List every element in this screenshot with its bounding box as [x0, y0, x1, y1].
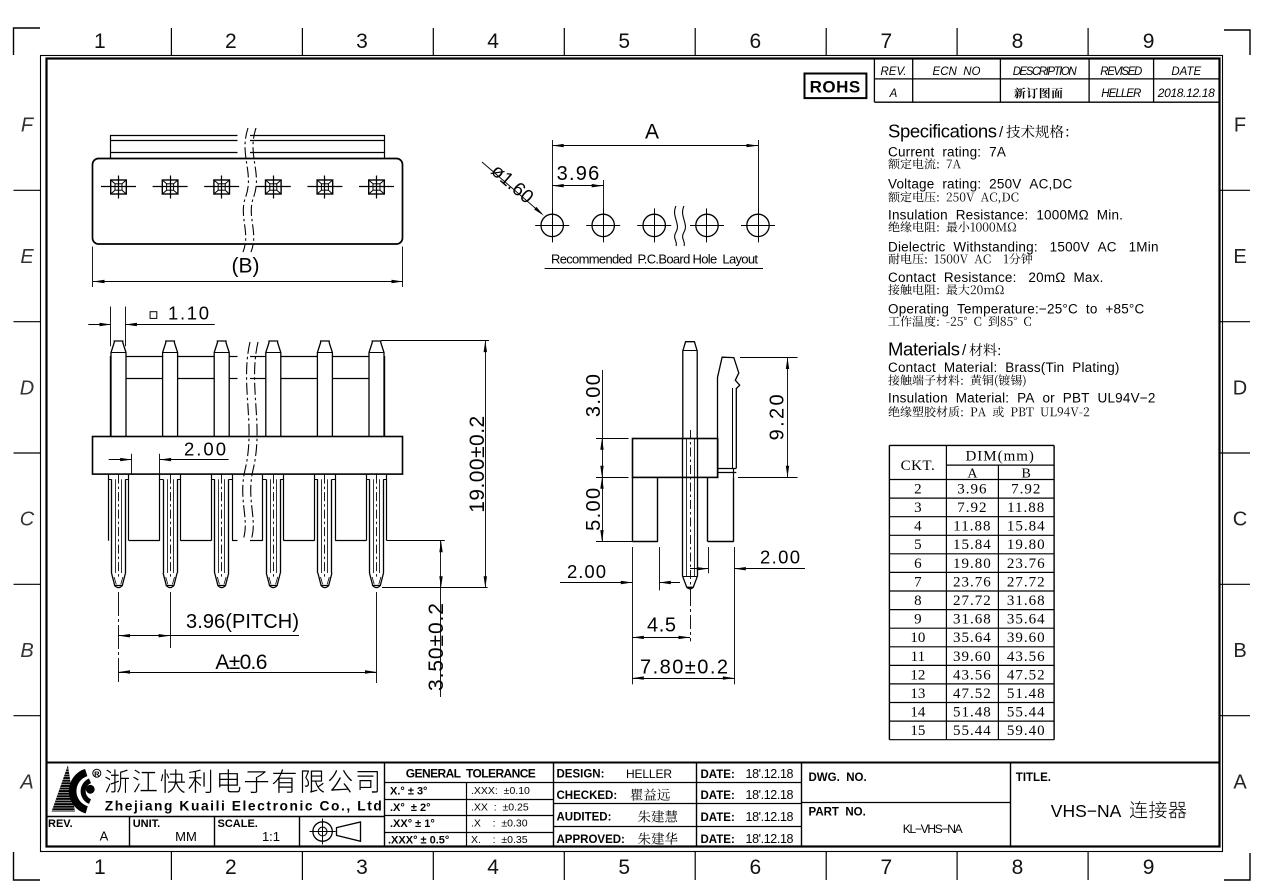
svg-text:CKT.: CKT.: [901, 458, 936, 474]
svg-text:HELLER: HELLER: [626, 767, 672, 781]
svg-text:Zhejiang Kuaili Electronic Co.: Zhejiang Kuaili Electronic Co., Ltd: [105, 799, 382, 814]
svg-text:8: 8: [914, 593, 922, 609]
svg-text:35.64: 35.64: [953, 630, 992, 646]
svg-text:7: 7: [881, 856, 893, 879]
svg-text:8: 8: [1012, 30, 1024, 53]
svg-text:REV.: REV.: [48, 818, 73, 830]
svg-text:E: E: [20, 246, 34, 268]
svg-text:39.60: 39.60: [953, 649, 992, 665]
svg-text:5: 5: [914, 537, 922, 553]
svg-text:14: 14: [910, 705, 926, 721]
svg-text:UNIT.: UNIT.: [133, 818, 161, 830]
svg-text:MM: MM: [175, 829, 197, 844]
svg-text:1: 1: [94, 856, 106, 879]
svg-text:B: B: [20, 640, 33, 662]
svg-text:A: A: [967, 466, 978, 481]
svg-text:5: 5: [618, 30, 630, 53]
svg-text:.XX° ± 1°: .XX° ± 1°: [390, 818, 435, 830]
svg-text:DESIGN:: DESIGN:: [557, 769, 605, 781]
svg-text:DESCRIPTION: DESCRIPTION: [1013, 66, 1078, 78]
svg-text:19.80: 19.80: [953, 556, 992, 572]
svg-text:11: 11: [911, 649, 925, 665]
svg-text:5.00: 5.00: [583, 488, 605, 531]
svg-text:11.88: 11.88: [953, 519, 991, 535]
svg-text:GENERAL TOLERANCE: GENERAL TOLERANCE: [406, 767, 536, 781]
svg-text:47.52: 47.52: [953, 686, 992, 702]
svg-text:9.20: 9.20: [767, 394, 789, 440]
svg-text:DATE:: DATE:: [701, 769, 735, 781]
svg-text:F: F: [21, 115, 35, 137]
svg-text:.X : ±0.30: .X : ±0.30: [471, 818, 528, 830]
svg-text:A: A: [100, 829, 109, 844]
svg-text:ROHS: ROHS: [810, 78, 861, 97]
svg-text:.XXX° ± 0.5°: .XXX° ± 0.5°: [388, 835, 449, 847]
svg-text:Contact Material: Brass(Tin: Contact Material: Brass(Tin Plating): [888, 360, 1120, 375]
svg-text:51.48: 51.48: [1007, 686, 1046, 702]
svg-text:(B): (B): [232, 255, 260, 278]
svg-text:55.44: 55.44: [953, 723, 992, 739]
svg-text:Operating Temperature:−25°C: Operating Temperature:−25°C to +85°C: [888, 301, 1145, 316]
svg-text:47.52: 47.52: [1007, 667, 1046, 683]
svg-text:DWG. NO.: DWG. NO.: [809, 772, 867, 784]
svg-text:Insulation Resistance: 1000M: Insulation Resistance: 1000MΩ Min.: [888, 207, 1123, 222]
svg-text:ECN NO: ECN NO: [933, 66, 981, 78]
svg-text:DATE:: DATE:: [701, 812, 735, 824]
svg-text:1.10: 1.10: [168, 303, 209, 324]
svg-text:3.96: 3.96: [957, 481, 987, 497]
svg-text:15.84: 15.84: [1007, 519, 1046, 535]
svg-text:Dielectric Withstanding: 15: Dielectric Withstanding: 1500V AC 1Min: [888, 239, 1159, 254]
svg-text:.XXX: ±0.10: .XXX: ±0.10: [471, 785, 530, 797]
svg-text:4.5: 4.5: [647, 615, 676, 637]
svg-text:DATE:: DATE:: [701, 790, 735, 802]
svg-text:4: 4: [914, 519, 922, 535]
svg-text:E: E: [1233, 246, 1246, 268]
svg-text:39.60: 39.60: [1007, 630, 1046, 646]
svg-text:6: 6: [749, 30, 761, 53]
svg-text:3.96: 3.96: [557, 163, 600, 185]
svg-text:1: 1: [94, 30, 106, 53]
svg-text:18'.12.18: 18'.12.18: [746, 832, 794, 846]
svg-text:3: 3: [914, 500, 922, 516]
svg-text:9: 9: [914, 612, 922, 628]
svg-text:31.68: 31.68: [1007, 593, 1046, 609]
svg-text:18'.12.18: 18'.12.18: [746, 767, 794, 781]
svg-text:3: 3: [356, 30, 368, 53]
svg-text:8: 8: [1012, 856, 1024, 879]
svg-text:10: 10: [910, 630, 925, 646]
svg-text:2018.12.18: 2018.12.18: [1157, 86, 1215, 100]
svg-text:7: 7: [881, 30, 893, 53]
svg-text:55.44: 55.44: [1007, 705, 1046, 721]
svg-text:2: 2: [225, 30, 237, 53]
svg-text:7.80±0.2: 7.80±0.2: [640, 657, 728, 679]
svg-text:A: A: [1233, 771, 1247, 793]
svg-text:Specifications: Specifications: [888, 121, 997, 142]
svg-text:C: C: [1233, 509, 1247, 531]
svg-text:43.56: 43.56: [1007, 649, 1046, 665]
svg-text:Current rating: 7A: Current rating: 7A: [888, 144, 1006, 159]
svg-text:R: R: [94, 769, 100, 778]
svg-text:15: 15: [910, 723, 925, 739]
svg-text:DIM(mm): DIM(mm): [965, 449, 1035, 465]
svg-text:X. : ±0.35: X. : ±0.35: [471, 834, 528, 846]
svg-text:18'.12.18: 18'.12.18: [746, 788, 794, 802]
svg-text:B: B: [1022, 466, 1031, 481]
svg-text:TITLE.: TITLE.: [1016, 772, 1051, 784]
svg-text:6: 6: [914, 556, 922, 572]
svg-text:2.00: 2.00: [567, 561, 606, 582]
svg-text:7.92: 7.92: [1011, 481, 1041, 497]
svg-text:4: 4: [487, 30, 499, 53]
svg-text:Materials: Materials: [888, 338, 960, 359]
svg-text:1:1: 1:1: [262, 829, 280, 844]
svg-text:5: 5: [618, 856, 630, 879]
svg-text:A: A: [889, 88, 898, 100]
svg-text:7.92: 7.92: [957, 500, 987, 516]
svg-text:35.64: 35.64: [1007, 612, 1046, 628]
svg-text:.X° ± 2°: .X° ± 2°: [390, 802, 431, 814]
svg-text:D: D: [20, 377, 34, 399]
svg-text:6: 6: [749, 856, 761, 879]
svg-text:Contact Resistance: 20mΩ M: Contact Resistance: 20mΩ Max.: [888, 270, 1104, 285]
svg-text:Recommended P.C.Board Hole L: Recommended P.C.Board Hole Layout: [551, 252, 758, 267]
svg-text:51.48: 51.48: [953, 705, 992, 721]
svg-text:3.50±0.2: 3.50±0.2: [425, 603, 448, 691]
svg-text:AUDITED:: AUDITED:: [557, 812, 612, 824]
svg-text:CHECKED:: CHECKED:: [557, 790, 618, 802]
svg-text:3: 3: [356, 856, 368, 879]
svg-text:19.00±0.2: 19.00±0.2: [466, 416, 489, 513]
svg-text:C: C: [20, 509, 35, 531]
svg-text:2: 2: [225, 856, 237, 879]
svg-text:27.72: 27.72: [1007, 574, 1046, 590]
svg-text:DATE:: DATE:: [701, 834, 735, 846]
svg-text:23.76: 23.76: [1007, 556, 1046, 572]
svg-text:X.° ± 3°: X.° ± 3°: [390, 786, 427, 798]
svg-text:19.80: 19.80: [1007, 537, 1046, 553]
svg-text:11.88: 11.88: [1007, 500, 1045, 516]
svg-text:D: D: [1233, 377, 1247, 399]
svg-text:.XX : ±0.25: .XX : ±0.25: [471, 801, 529, 813]
svg-text:12: 12: [910, 667, 925, 683]
svg-text:59.40: 59.40: [1007, 723, 1046, 739]
svg-text:VHS−NA: VHS−NA: [1051, 801, 1122, 821]
svg-text:REVISED: REVISED: [1100, 66, 1142, 78]
svg-text:B: B: [1233, 640, 1246, 662]
svg-text:31.68: 31.68: [953, 612, 992, 628]
svg-text:HELLER: HELLER: [1101, 88, 1141, 100]
svg-text:SCALE.: SCALE.: [218, 818, 258, 830]
svg-text:REV.: REV.: [881, 66, 907, 78]
svg-text:A±0.6: A±0.6: [215, 651, 267, 674]
svg-text:3.96(PITCH): 3.96(PITCH): [186, 611, 299, 633]
svg-text:23.76: 23.76: [953, 574, 992, 590]
svg-text:18'.12.18: 18'.12.18: [746, 810, 794, 824]
svg-text:43.56: 43.56: [953, 667, 992, 683]
svg-text:A: A: [645, 121, 659, 144]
svg-text:2.00: 2.00: [184, 439, 226, 460]
svg-text:2: 2: [914, 481, 922, 497]
svg-text:15.84: 15.84: [953, 537, 992, 553]
svg-text:9: 9: [1143, 856, 1155, 879]
svg-text:4: 4: [487, 856, 499, 879]
svg-text:A: A: [19, 771, 33, 793]
svg-text:3.00: 3.00: [583, 374, 605, 417]
svg-text:PART NO.: PART NO.: [809, 806, 866, 818]
svg-text:KL−VHS−NA: KL−VHS−NA: [903, 822, 963, 836]
svg-text:Insulation Material: PA or: Insulation Material: PA or PBT UL94V−2: [888, 391, 1156, 406]
svg-text:F: F: [1234, 115, 1246, 137]
svg-text:APPROVED:: APPROVED:: [557, 834, 625, 846]
svg-text:13: 13: [910, 686, 925, 702]
svg-text:DATE: DATE: [1171, 66, 1201, 78]
svg-text:2.00: 2.00: [760, 546, 800, 567]
svg-text:7: 7: [914, 574, 922, 590]
svg-text:27.72: 27.72: [953, 593, 992, 609]
svg-text:9: 9: [1143, 30, 1155, 53]
svg-text:Voltage rating: 250V AC,DC: Voltage rating: 250V AC,DC: [888, 177, 1072, 192]
